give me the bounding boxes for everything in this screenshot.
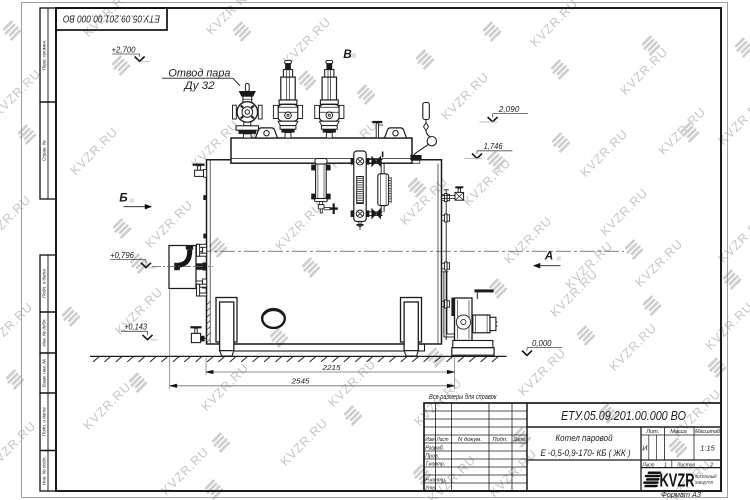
svg-text:ЗАВОД РЭП: ЗАВОД РЭП [695, 480, 714, 485]
svg-text:Разраб.: Разраб. [425, 445, 444, 451]
svg-text:Инв. № дубл.: Инв. № дубл. [42, 318, 47, 346]
svg-text:КОТЕЛЬНЫЙ: КОТЕЛЬНЫЙ [695, 474, 717, 479]
svg-text:Масса: Масса [670, 429, 687, 435]
svg-text:Отвод пара: Отвод пара [168, 67, 230, 79]
svg-text:Формат А3: Формат А3 [661, 490, 702, 499]
svg-text:2545: 2545 [290, 376, 310, 385]
svg-text:Взам. инв. №: Взам. инв. № [42, 359, 47, 387]
svg-text:Перв. примен.: Перв. примен. [42, 40, 47, 71]
svg-text:1,746: 1,746 [484, 141, 503, 151]
svg-text:Изм: Изм [425, 437, 435, 443]
svg-text:Т.контр.: Т.контр. [425, 461, 445, 467]
svg-text:Котел паровой: Котел паровой [556, 433, 614, 444]
svg-text:Пров.: Пров. [425, 453, 439, 459]
svg-text:1: 1 [664, 462, 667, 468]
svg-text:Е -0,5-0,9-170- КБ ( ЖК ): Е -0,5-0,9-170- КБ ( ЖК ) [541, 448, 631, 459]
svg-text:Подп.: Подп. [493, 437, 508, 443]
svg-text:Ду 32: Ду 32 [183, 80, 214, 92]
svg-text:Лит.: Лит. [645, 429, 659, 435]
svg-text:+2,700: +2,700 [112, 44, 136, 54]
svg-text:Дата: Дата [513, 437, 526, 443]
svg-text:KVZR: KVZR [660, 469, 695, 490]
svg-text:N докум.: N докум. [458, 437, 482, 443]
svg-text:Подп. и дата: Подп. и дата [42, 407, 47, 436]
svg-text:ЕТУ.05.09.201.00.000 ВО: ЕТУ.05.09.201.00.000 ВО [63, 12, 160, 23]
svg-text:Б: Б [119, 191, 127, 205]
svg-text:А: А [544, 249, 554, 263]
svg-text:Лист: Лист [642, 462, 655, 468]
svg-text:Подп. и дата: Подп. и дата [42, 269, 47, 298]
svg-text:+0,143: +0,143 [124, 322, 147, 332]
svg-text:Справ. №: Справ. № [42, 140, 47, 161]
svg-text:Все размеры для справок: Все размеры для справок [429, 392, 497, 401]
svg-text:1:15: 1:15 [700, 444, 715, 453]
svg-text:2,090: 2,090 [498, 104, 520, 114]
svg-text:2215: 2215 [321, 363, 341, 372]
svg-text:Масштаб: Масштаб [695, 429, 721, 435]
svg-text:0,000: 0,000 [532, 338, 552, 348]
svg-text:+0,796: +0,796 [110, 250, 134, 260]
svg-text:И: И [642, 444, 648, 453]
svg-text:ЕТУ.05.09.201.00.000 ВО: ЕТУ.05.09.201.00.000 ВО [561, 408, 686, 423]
svg-text:Инв. № подл.: Инв. № подл. [42, 456, 47, 485]
svg-text:В: В [343, 47, 352, 61]
svg-text:Н.контр.: Н.контр. [425, 477, 446, 483]
svg-text:Утв.: Утв. [424, 485, 436, 491]
svg-text:Листов: Листов [676, 462, 695, 468]
svg-text:Лист: Лист [436, 437, 449, 443]
